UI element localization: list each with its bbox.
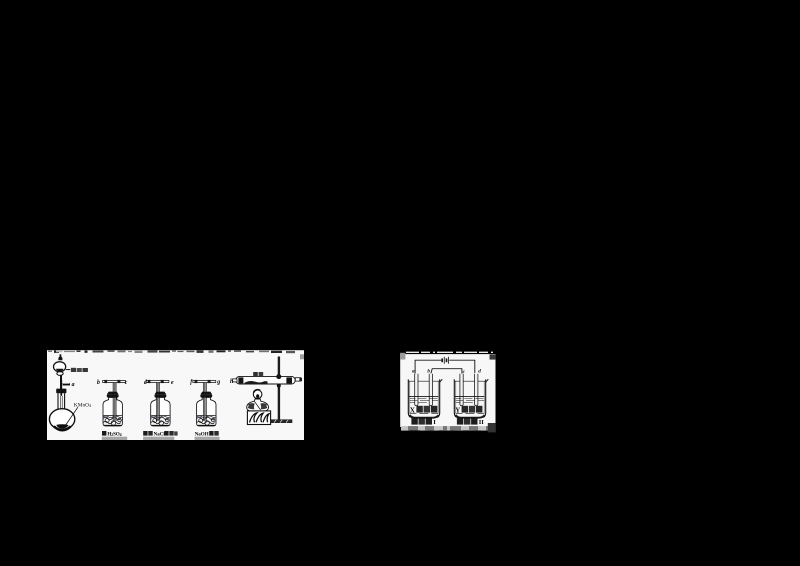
svg-text:b: b [97, 380, 100, 386]
svg-text:a: a [412, 368, 415, 374]
svg-text:X: X [410, 406, 415, 414]
svg-text:e: e [171, 380, 174, 386]
svg-text:NaCl: NaCl [154, 432, 166, 437]
svg-text:a: a [72, 382, 75, 388]
svg-text:NaOH: NaOH [195, 432, 209, 437]
svg-text:I: I [433, 419, 436, 426]
svg-text:H2SO4: H2SO4 [107, 432, 121, 437]
svg-text:c: c [125, 380, 128, 386]
svg-text:b: b [427, 368, 430, 374]
svg-text:II: II [479, 419, 485, 426]
svg-text:g: g [216, 380, 220, 386]
svg-text:Y: Y [455, 406, 460, 414]
svg-text:d: d [144, 380, 147, 386]
svg-text:KMnO4: KMnO4 [74, 402, 91, 408]
svg-text:d: d [478, 369, 481, 375]
